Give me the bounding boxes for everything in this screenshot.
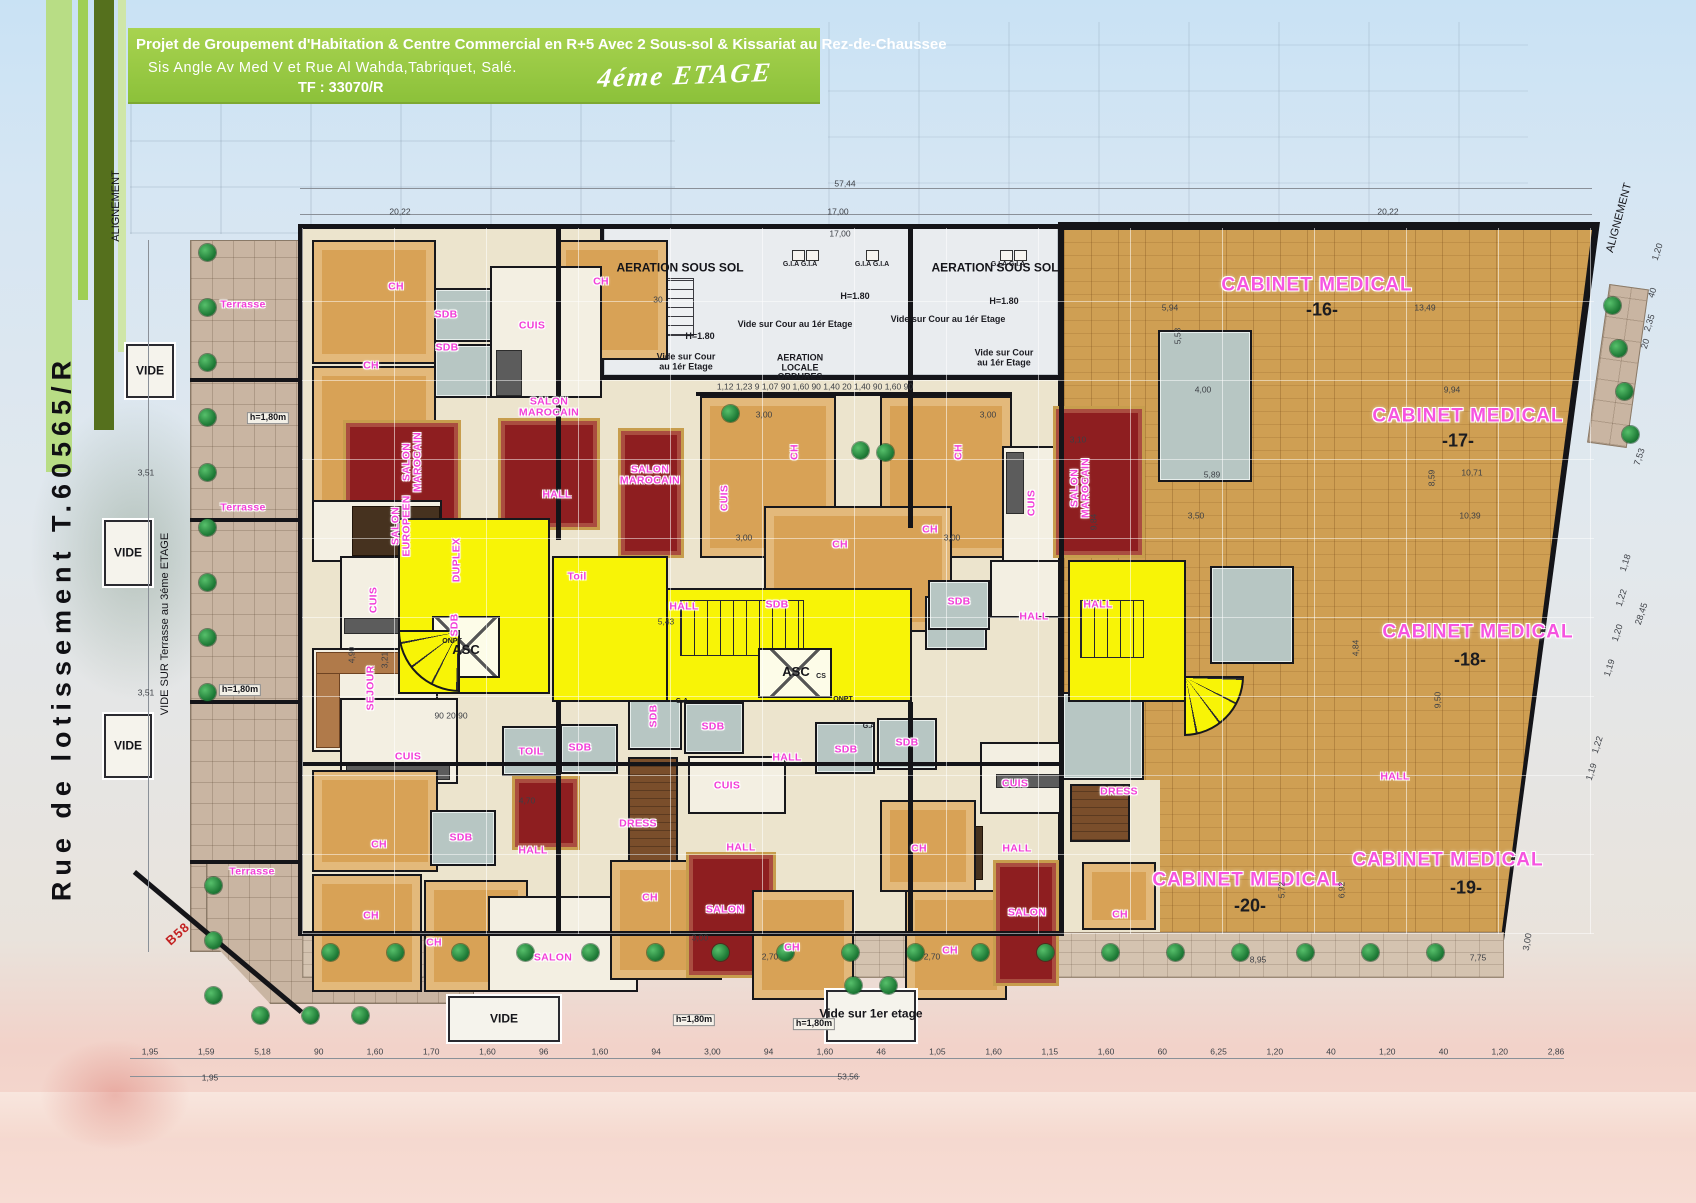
wall-patch: [190, 860, 302, 864]
label-1-18: 1,18: [1619, 553, 1634, 573]
label-1-20: 1,20: [1491, 1047, 1508, 1056]
label-1-19: 1,19: [1585, 762, 1600, 782]
tree-icon: [252, 1007, 269, 1024]
red-patch: [1053, 406, 1145, 558]
label-1-20: 1,20: [1651, 242, 1666, 262]
background-building-left: [130, 92, 675, 234]
tree-icon: [972, 944, 989, 961]
label-90: 90: [314, 1047, 323, 1056]
tree-icon: [322, 944, 339, 961]
gray-patch: [1062, 692, 1144, 780]
dline-patch: [300, 214, 1592, 215]
tree-icon: [1622, 426, 1639, 443]
tree-icon: [199, 299, 216, 316]
green-bar: [46, 0, 72, 472]
gray-patch: [1158, 330, 1252, 482]
tree-icon: [199, 519, 216, 536]
tree-icon: [907, 944, 924, 961]
label-1-59: 1,59: [198, 1047, 215, 1056]
tree-icon: [387, 944, 404, 961]
tree-icon: [582, 944, 599, 961]
tan-patch: [1082, 862, 1156, 930]
label-1-95: 1,95: [202, 1073, 219, 1082]
tree-icon: [199, 684, 216, 701]
tree-icon: [199, 464, 216, 481]
tree-icon: [722, 405, 739, 422]
tree-icon: [1102, 944, 1119, 961]
label-60: 60: [1158, 1047, 1167, 1056]
label-1-60: 1,60: [479, 1047, 496, 1056]
floorplan-canvas: Projet de Groupement d'Habitation & Cent…: [0, 0, 1696, 1203]
tree-icon: [205, 987, 222, 1004]
videbox-patch: [826, 990, 916, 1042]
label-1-22: 1,22: [1591, 735, 1606, 755]
wall-patch: [190, 378, 302, 382]
background-vehicle: [40, 1040, 190, 1150]
tree-icon: [199, 409, 216, 426]
outline-patch: [298, 224, 1064, 936]
gray-patch: [1210, 566, 1294, 664]
dline-patch: [148, 240, 149, 952]
label-53-56: 53,56: [837, 1072, 858, 1081]
label-5-18: 5,18: [254, 1047, 271, 1056]
label-1-60: 1,60: [817, 1047, 834, 1056]
tile-patch: [190, 240, 302, 952]
tree-icon: [1232, 944, 1249, 961]
label-46: 46: [876, 1047, 885, 1056]
tree-icon: [880, 977, 897, 994]
label-40: 40: [1326, 1047, 1335, 1056]
label-94: 94: [764, 1047, 773, 1056]
dline-patch: [130, 1058, 1564, 1059]
tree-icon: [302, 1007, 319, 1024]
tree-icon: [352, 1007, 369, 1024]
tree-icon: [1427, 944, 1444, 961]
wood2-patch: [1070, 784, 1130, 842]
label-7-53: 7,53: [1633, 447, 1648, 467]
project-title: Projet de Groupement d'Habitation & Cent…: [136, 36, 947, 53]
label-96: 96: [539, 1047, 548, 1056]
tree-icon: [712, 944, 729, 961]
tree-icon: [852, 442, 869, 459]
label-1-20: 1,20: [1379, 1047, 1396, 1056]
tree-icon: [517, 944, 534, 961]
label-1-70: 1,70: [423, 1047, 440, 1056]
videbox-patch: [104, 520, 152, 586]
tree-icon: [842, 944, 859, 961]
label-1-15: 1,15: [1042, 1047, 1059, 1056]
tree-icon: [1616, 383, 1633, 400]
label-28-45: 28,45: [1634, 602, 1650, 626]
tree-icon: [1037, 944, 1054, 961]
project-address: Sis Angle Av Med V et Rue Al Wahda,Tabri…: [148, 60, 517, 76]
green-bar: [94, 0, 114, 430]
street-band: [0, 1092, 1696, 1138]
label-6-25: 6,25: [1210, 1047, 1227, 1056]
tree-icon: [199, 574, 216, 591]
label-40: 40: [1439, 1047, 1448, 1056]
background-building-right: [828, 22, 1528, 230]
tree-icon: [877, 444, 894, 461]
label-1-20: 1,20: [1611, 623, 1626, 643]
label-1-22: 1,22: [1615, 588, 1630, 608]
dline-patch: [130, 1076, 860, 1077]
label-1-60: 1,60: [1098, 1047, 1115, 1056]
label-1-60: 1,60: [592, 1047, 609, 1056]
label-h-1-80m: h=1,80m: [673, 1014, 715, 1026]
label-1-05: 1,05: [929, 1047, 946, 1056]
label-3-00: 3,00: [704, 1047, 721, 1056]
label-1-20: 1,20: [1267, 1047, 1284, 1056]
tree-icon: [647, 944, 664, 961]
videbox-patch: [126, 344, 174, 398]
label-1-60: 1,60: [367, 1047, 384, 1056]
hatchV-patch: [1080, 600, 1144, 658]
tree-icon: [1167, 944, 1184, 961]
floor-name: 4éme ETAGE: [596, 57, 774, 94]
tree-icon: [205, 877, 222, 894]
label-2-86: 2,86: [1548, 1047, 1565, 1056]
tree-icon: [199, 354, 216, 371]
tree-icon: [777, 944, 794, 961]
label-1-60: 1,60: [985, 1047, 1002, 1056]
green-bar: [78, 0, 88, 300]
tree-icon: [1604, 297, 1621, 314]
tree-icon: [199, 629, 216, 646]
tree-icon: [845, 977, 862, 994]
dline-patch: [300, 188, 1592, 189]
label-1-19: 1,19: [1603, 658, 1618, 678]
label-alignement: ALIGNEMENT: [1605, 182, 1635, 254]
tree-icon: [1297, 944, 1314, 961]
tree-icon: [452, 944, 469, 961]
videbox-patch: [448, 996, 560, 1042]
tree-icon: [205, 932, 222, 949]
tree-icon: [1362, 944, 1379, 961]
green-bar: [118, 0, 126, 352]
videbox-patch: [104, 714, 152, 778]
project-tf: TF : 33070/R: [298, 80, 383, 96]
label-3-00: 3,00: [1522, 933, 1535, 952]
label-94: 94: [651, 1047, 660, 1056]
tree-icon: [1610, 340, 1627, 357]
tree-icon: [199, 244, 216, 261]
label-b58: B58: [163, 920, 192, 948]
